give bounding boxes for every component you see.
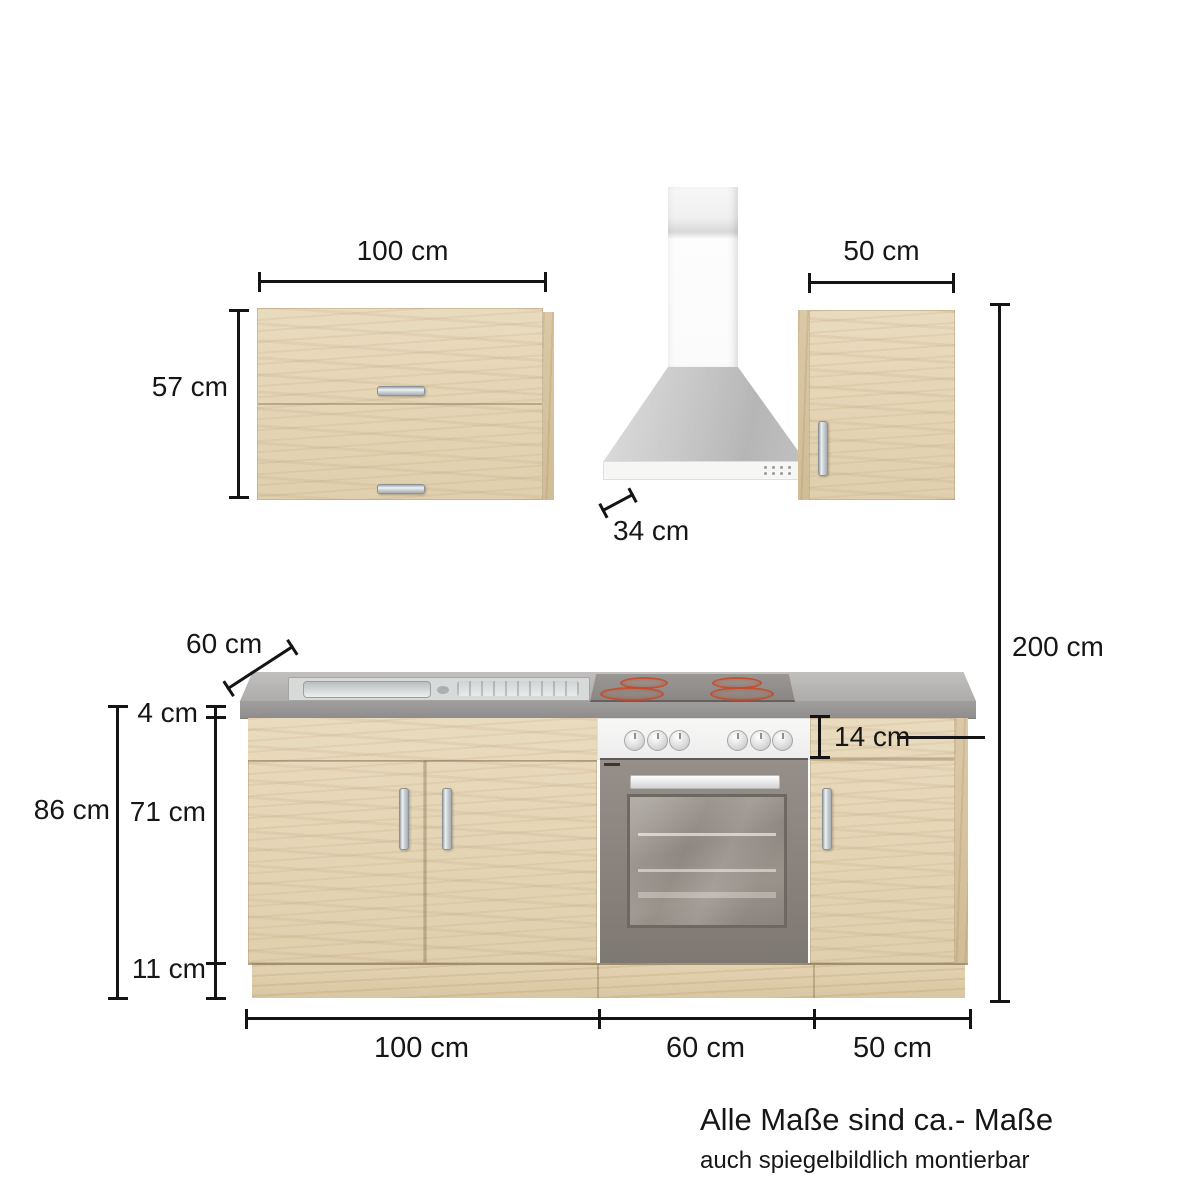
dim-oven-panel-leader: [897, 736, 985, 739]
door-handle: [377, 386, 425, 396]
oven-knob: [647, 730, 668, 751]
door-handle: [822, 788, 832, 850]
base-cabinet-sink: [248, 718, 597, 965]
wall-cabinet-left-side-panel: [543, 312, 554, 500]
oven-control-panel: [597, 718, 812, 760]
hood-control-buttons: [764, 466, 793, 475]
wall-cabinet-right: [798, 308, 955, 500]
dim-oven-panel-line: [810, 715, 830, 759]
oven-glass-reflection: [630, 797, 784, 925]
oven-indicator: [604, 763, 620, 766]
dim-base-front-height-label: 71 cm: [112, 797, 206, 828]
dim-wall-left-width-line: [258, 272, 547, 292]
oven-knob: [750, 730, 771, 751]
door-handle: [442, 788, 452, 850]
cooktop-burner: [710, 687, 774, 701]
dim-total-height-label: 200 cm: [1012, 632, 1142, 663]
sink-bowl: [303, 681, 431, 698]
wall-cabinet-right-side-panel: [798, 310, 809, 500]
dim-total-height-line: [990, 303, 1010, 1003]
dim-wall-left-width-label: 100 cm: [258, 236, 547, 267]
wall-cabinet-right-front: [809, 310, 955, 500]
kitchen-dimension-diagram: 100 cm 57 cm 34 cm 50 cm 200 cm 60 cm 86…: [0, 0, 1200, 1200]
dim-base-total-height-label: 86 cm: [28, 795, 110, 826]
sink-drainer: [457, 681, 579, 696]
wall-cabinet-left: [257, 308, 554, 500]
sink-cabinet-door-left: [248, 760, 424, 963]
dim-wall-depth-label: 34 cm: [613, 516, 723, 547]
sink-drain-hole: [437, 686, 449, 694]
dim-base-widths-line: [245, 1009, 972, 1029]
plinth-seam: [813, 965, 815, 998]
dim-base-right-width-label: 50 cm: [813, 1033, 972, 1065]
base-right-side-panel: [955, 718, 968, 963]
note-line-1: Alle Maße sind ca.- Maße: [700, 1102, 1180, 1138]
dim-wall-depth-line: [598, 487, 637, 518]
dim-wall-right-width-label: 50 cm: [808, 236, 955, 267]
wall-cabinet-left-door-divider: [258, 403, 542, 405]
plinth: [252, 963, 965, 998]
dim-base-oven-width-label: 60 cm: [598, 1033, 813, 1065]
oven: [600, 758, 808, 965]
hood-canopy: [603, 367, 806, 462]
oven-knob: [624, 730, 645, 751]
base-cabinet-right: [810, 718, 968, 965]
dim-wall-left-height-line: [229, 309, 249, 499]
door-handle: [377, 484, 425, 494]
door-handle: [399, 788, 409, 850]
oven-knob: [669, 730, 690, 751]
dim-plinth-height-label: 11 cm: [108, 954, 206, 985]
hood-chimney: [668, 187, 738, 367]
sink: [288, 677, 590, 701]
cooktop-burner: [600, 687, 664, 701]
oven-door-handle: [630, 775, 780, 789]
dim-worktop-thickness-label: 4 cm: [118, 698, 198, 729]
plinth-seam: [597, 965, 599, 998]
worktop-front-edge: [240, 701, 976, 719]
cooktop: [590, 674, 795, 702]
note-line-2: auch spiegelbildlich montierbar: [700, 1147, 1180, 1175]
door-handle: [818, 421, 828, 476]
dim-base-sections-line: [206, 705, 226, 1000]
oven-knob: [727, 730, 748, 751]
dim-wall-right-width-line: [808, 273, 955, 293]
oven-knob: [772, 730, 793, 751]
oven-window: [627, 794, 787, 928]
hood-control-strip: [603, 461, 808, 480]
dim-base-sink-width-label: 100 cm: [245, 1033, 598, 1065]
dim-wall-left-height-label: 57 cm: [128, 372, 228, 403]
